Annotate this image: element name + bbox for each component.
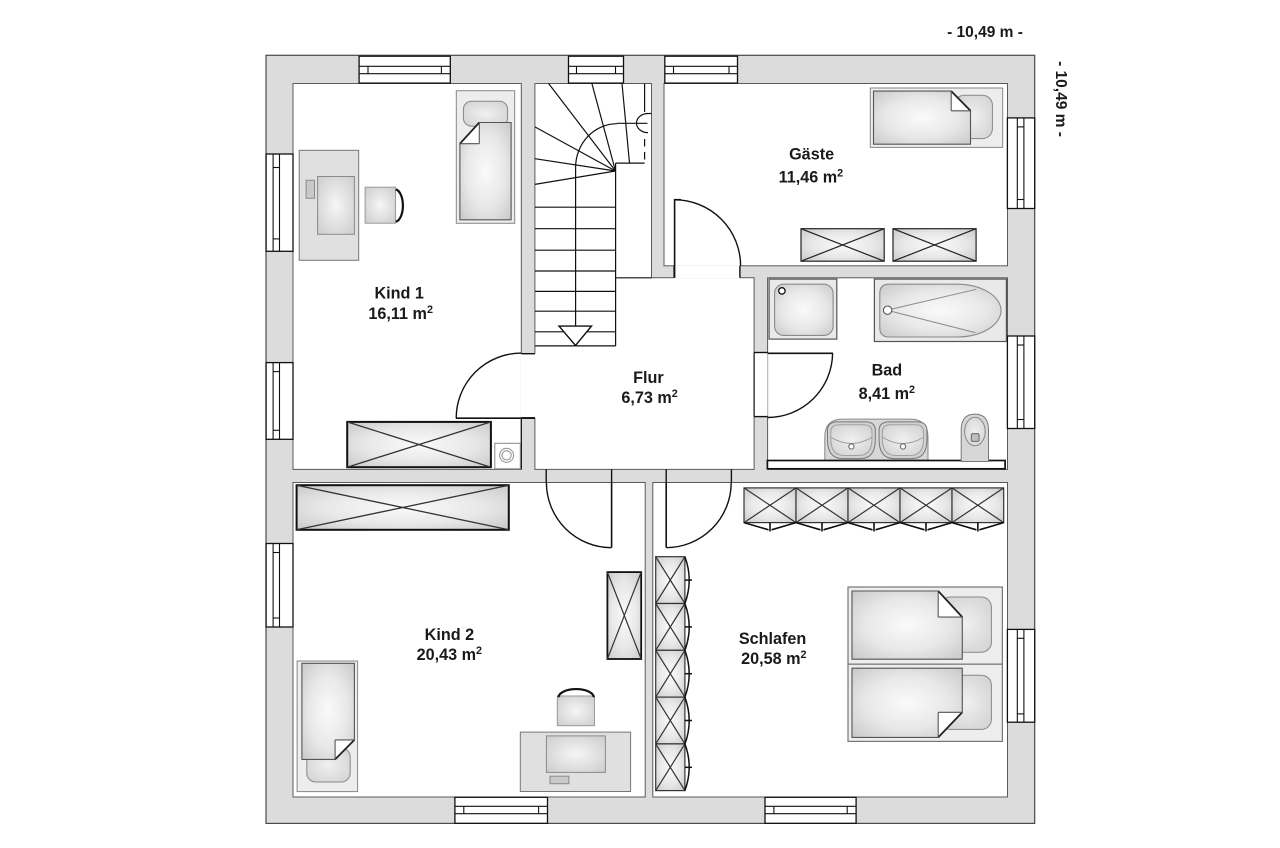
svg-text:8,41 m2: 8,41 m2 (859, 384, 915, 403)
svg-text:Bad: Bad (872, 362, 903, 380)
svg-text:Schlafen: Schlafen (739, 630, 806, 648)
svg-text:11,46 m2: 11,46 m2 (779, 168, 844, 187)
svg-text:20,58 m2: 20,58 m2 (741, 649, 806, 668)
svg-text:6,73 m2: 6,73 m2 (621, 388, 677, 407)
svg-text:Kind 1: Kind 1 (374, 285, 423, 303)
svg-text:Flur: Flur (633, 369, 664, 387)
svg-text:- 10,49 m -: - 10,49 m - (947, 24, 1023, 41)
svg-text:Kind 2: Kind 2 (425, 626, 474, 644)
svg-text:Gäste: Gäste (789, 146, 834, 164)
svg-text:- 10,49 m -: - 10,49 m - (1052, 61, 1069, 137)
svg-text:16,11 m2: 16,11 m2 (368, 304, 433, 323)
svg-text:20,43 m2: 20,43 m2 (417, 645, 482, 664)
